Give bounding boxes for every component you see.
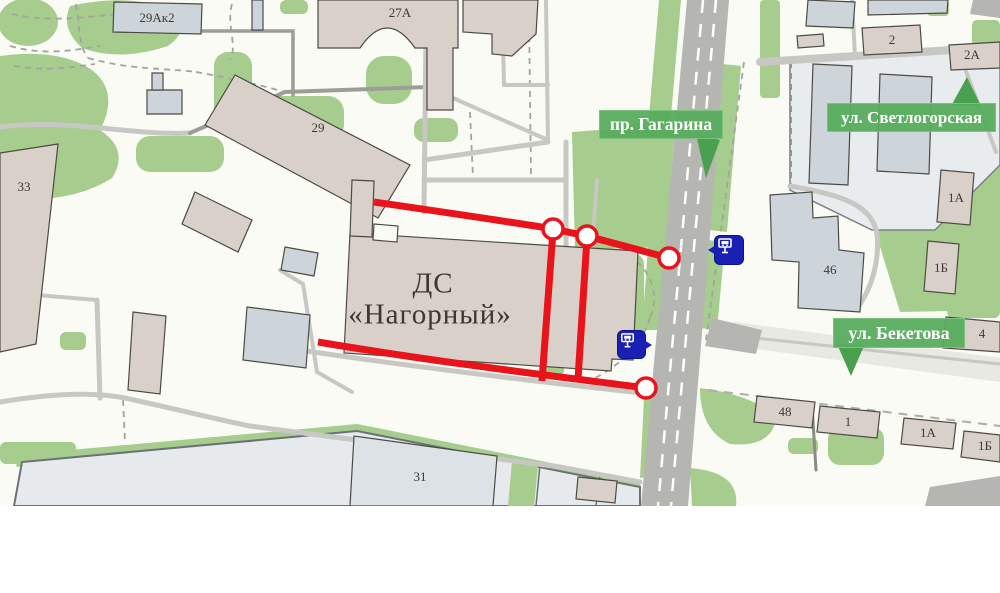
buildings [0, 0, 1000, 506]
traffic-restriction-announcement: пр. Гагарина ул. Светлогорская ул. Бекет… [0, 0, 1000, 593]
building-label-2: 2 [889, 32, 896, 48]
building-label-46: 46 [824, 262, 837, 278]
dc-nagorny-label-line1: ДС [412, 268, 453, 301]
map-canvas [0, 0, 1000, 506]
building-label-48: 48 [779, 404, 792, 420]
building-label-29ak2: 29Ак2 [139, 10, 174, 26]
building-label-1: 1 [845, 414, 852, 430]
dc-nagorny-label-line2: «Нагорный» [348, 299, 512, 332]
map: пр. Гагарина ул. Светлогорская ул. Бекет… [0, 0, 1000, 506]
building-label-4: 4 [979, 326, 986, 342]
street-label-beketova: ул. Бекетова [833, 318, 965, 348]
restriction-endpoint-circle [636, 378, 656, 398]
building-label-27a: 27А [389, 5, 411, 21]
restriction-endpoint-circle [577, 226, 597, 246]
building-label-2a: 2А [964, 47, 980, 63]
building-label-1b-east: 1Б [934, 260, 948, 276]
restriction-endpoint-circle [543, 219, 563, 239]
bus-stop-icon [714, 235, 744, 265]
street-label-svetlogorskaya: ул. Светлогорская [827, 103, 996, 132]
bus-stop-pointer [644, 340, 652, 350]
bus-stop-glyph [618, 331, 637, 350]
building-label-1a-south: 1А [920, 425, 936, 441]
building-label-1b-south: 1Б [978, 438, 992, 454]
building-label-29: 29 [312, 120, 325, 136]
building-label-1a-east: 1А [948, 190, 964, 206]
bus-stop-icon [617, 330, 646, 359]
building-label-33: 33 [18, 179, 31, 195]
bus-stop-glyph [715, 236, 735, 256]
restriction-endpoint-circle [659, 248, 679, 268]
street-label-gagarina: пр. Гагарина [599, 110, 723, 139]
legend: Зона ограничения движения ВНИМАНИЮ АВТОВ… [0, 506, 1000, 593]
building-label-31: 31 [414, 469, 427, 485]
